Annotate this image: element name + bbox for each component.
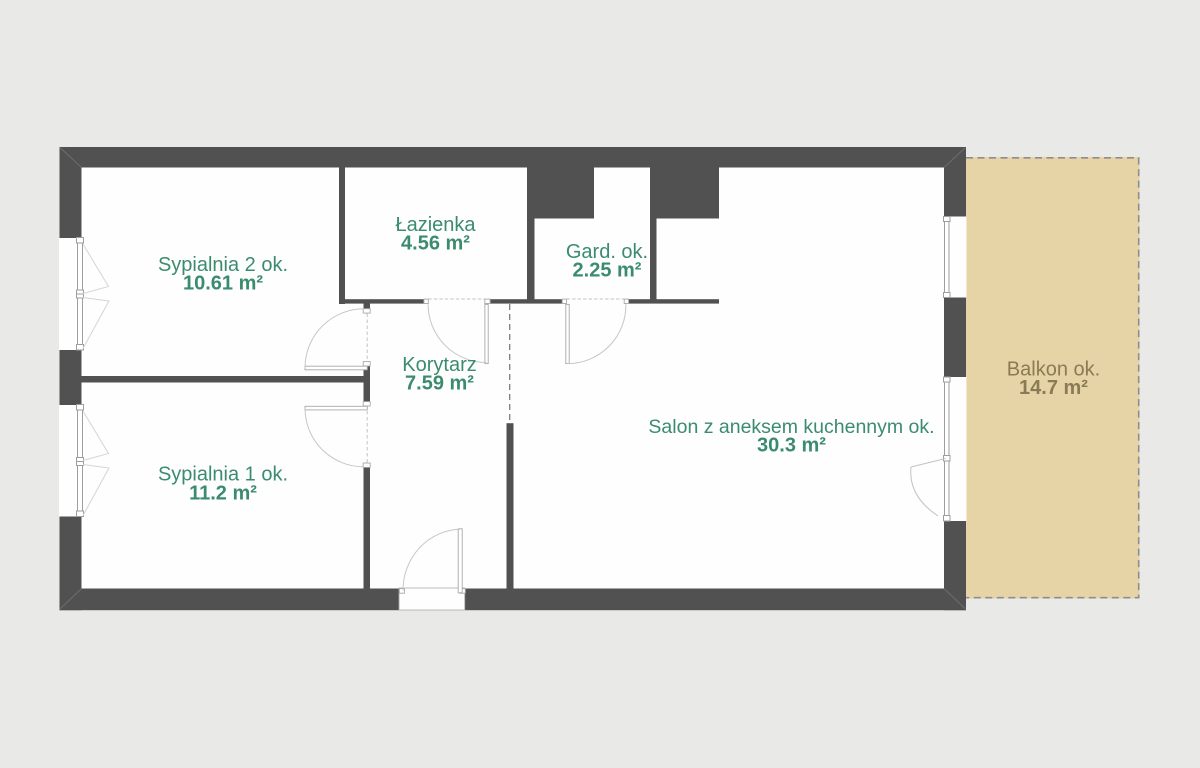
svg-text:14.7 m²: 14.7 m² [1019, 377, 1088, 399]
svg-text:30.3 m²: 30.3 m² [757, 435, 826, 457]
svg-text:4.56 m²: 4.56 m² [401, 233, 470, 255]
svg-text:2.25 m²: 2.25 m² [573, 260, 642, 282]
svg-text:7.59 m²: 7.59 m² [405, 373, 474, 395]
svg-text:10.61 m²: 10.61 m² [183, 273, 263, 295]
svg-text:11.2 m²: 11.2 m² [189, 483, 257, 505]
